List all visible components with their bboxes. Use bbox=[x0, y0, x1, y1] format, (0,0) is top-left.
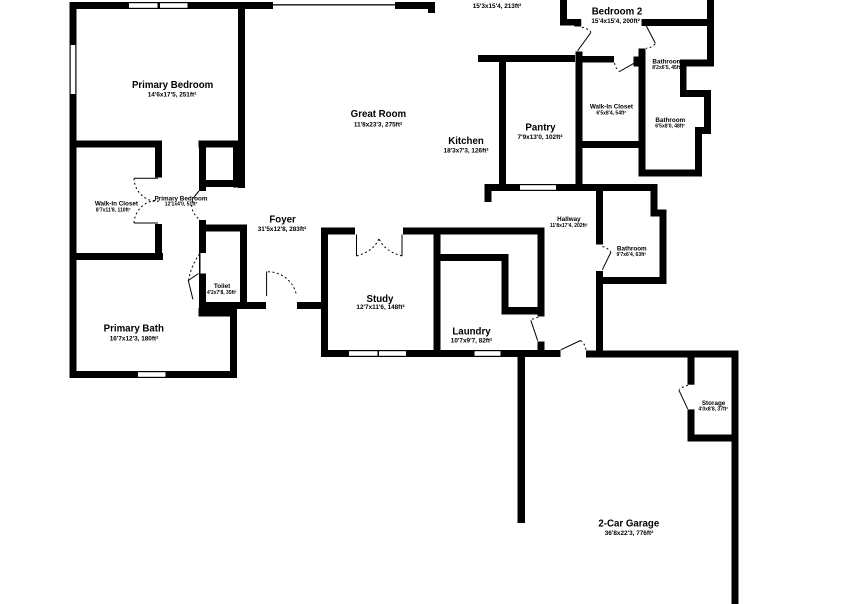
svg-text:4'2x7'8, 35ft²: 4'2x7'8, 35ft² bbox=[207, 290, 237, 296]
svg-text:Kitchen: Kitchen bbox=[448, 136, 484, 147]
svg-text:6'5x8'4, 54ft²: 6'5x8'4, 54ft² bbox=[596, 110, 626, 116]
svg-text:12'1x4'0, 51ft²: 12'1x4'0, 51ft² bbox=[165, 202, 198, 208]
svg-text:Foyer: Foyer bbox=[269, 214, 296, 225]
svg-text:6'5x8'0, 48ft²: 6'5x8'0, 48ft² bbox=[655, 124, 685, 130]
svg-text:Bedroom 2: Bedroom 2 bbox=[592, 6, 643, 17]
svg-text:9'7x6'4, 63ft²: 9'7x6'4, 63ft² bbox=[616, 252, 646, 258]
svg-text:4'0x8'8, 37ft²: 4'0x8'8, 37ft² bbox=[698, 407, 728, 413]
svg-text:Great Room: Great Room bbox=[351, 109, 407, 120]
svg-text:Primary Bath: Primary Bath bbox=[104, 324, 164, 335]
svg-text:11'8x17'4, 202ft²: 11'8x17'4, 202ft² bbox=[550, 223, 588, 229]
svg-text:Primary Bedroom: Primary Bedroom bbox=[132, 80, 214, 91]
svg-text:15'3x15'4, 213ft²: 15'3x15'4, 213ft² bbox=[473, 3, 522, 10]
svg-text:Study: Study bbox=[367, 294, 395, 305]
svg-text:31'5x12'8, 283ft²: 31'5x12'8, 283ft² bbox=[258, 226, 307, 233]
svg-text:16'7x12'3, 180ft²: 16'7x12'3, 180ft² bbox=[110, 336, 159, 343]
svg-text:2-Car Garage: 2-Car Garage bbox=[598, 519, 659, 530]
svg-text:Walk-In Closet: Walk-In Closet bbox=[95, 201, 139, 208]
svg-text:36'8x22'3, 776ft²: 36'8x22'3, 776ft² bbox=[605, 530, 654, 537]
svg-text:14'6x17'5, 251ft²: 14'6x17'5, 251ft² bbox=[148, 92, 197, 99]
svg-text:Pantry: Pantry bbox=[525, 122, 556, 133]
svg-text:8'2x6'5, 45ft²: 8'2x6'5, 45ft² bbox=[652, 65, 682, 71]
svg-text:18'3x7'3, 126ft²: 18'3x7'3, 126ft² bbox=[444, 148, 489, 155]
svg-text:8'7x11'8, 110ft²: 8'7x11'8, 110ft² bbox=[96, 208, 131, 214]
svg-text:12'7x11'6, 148ft²: 12'7x11'6, 148ft² bbox=[356, 304, 404, 311]
svg-text:15'4x15'4, 200ft²: 15'4x15'4, 200ft² bbox=[591, 18, 640, 25]
svg-text:10'7x9'7, 82ft²: 10'7x9'7, 82ft² bbox=[451, 338, 492, 345]
svg-text:Laundry: Laundry bbox=[452, 327, 491, 338]
svg-text:7'9x13'0, 102ft²: 7'9x13'0, 102ft² bbox=[518, 134, 563, 141]
svg-text:11'8x23'3, 275ft²: 11'8x23'3, 275ft² bbox=[354, 121, 402, 128]
